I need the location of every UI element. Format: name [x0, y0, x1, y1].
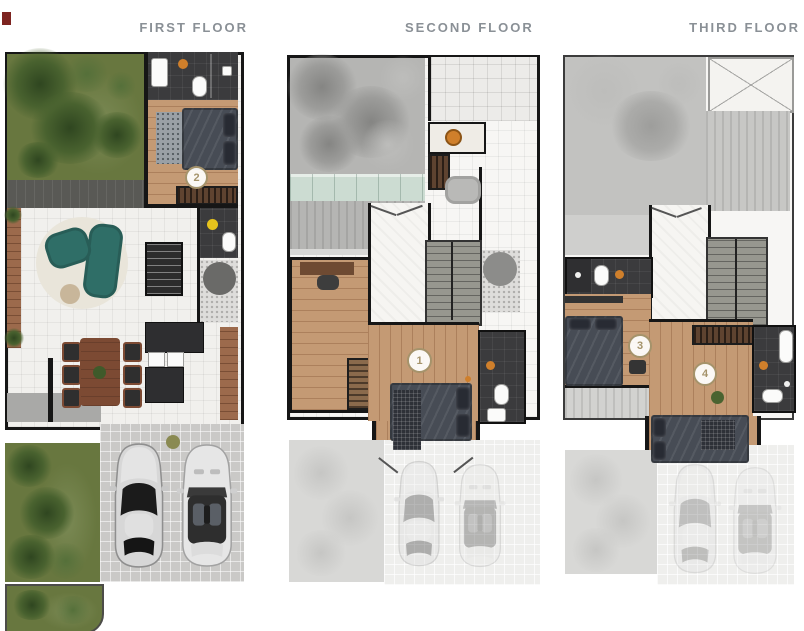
shower-court — [200, 260, 238, 322]
wall-segment — [144, 52, 148, 208]
staircase — [425, 240, 482, 326]
wall-segment — [368, 322, 479, 325]
tree-canopy-gray — [290, 58, 425, 174]
shrub-blob — [53, 596, 93, 624]
tree-blob-gray — [378, 56, 428, 100]
staircase — [145, 242, 183, 296]
powder-room — [200, 208, 238, 258]
tree-blob-gray — [298, 116, 360, 172]
skylight-panel — [708, 57, 794, 113]
shrub-blob — [91, 112, 143, 158]
terrace-deck — [7, 180, 148, 208]
pouf — [60, 284, 80, 304]
dining-chair — [123, 365, 142, 385]
bench — [629, 360, 646, 374]
car-coupe-faded — [393, 458, 445, 570]
shrub-blob — [11, 590, 53, 620]
stair-rail — [451, 242, 453, 320]
tree-blob — [19, 487, 75, 539]
car-coupe-faded — [668, 462, 722, 576]
striped-roof — [706, 111, 790, 211]
wardrobe — [692, 325, 754, 345]
second-floor-plan: 1 — [287, 53, 540, 590]
dining-chair — [62, 388, 81, 408]
shower-drain — [222, 66, 232, 76]
side-deck — [7, 208, 21, 348]
void — [649, 205, 711, 321]
front-garden — [5, 584, 104, 631]
shower-court — [482, 250, 520, 312]
shared-bath — [565, 257, 653, 298]
shrub-blob — [105, 72, 137, 100]
toilet — [192, 76, 207, 97]
first-floor-plan: 2 — [2, 10, 247, 630]
ground-trees-faded — [289, 440, 384, 582]
ensuite-bath — [478, 330, 526, 424]
ground-trees-faded — [565, 450, 657, 574]
lamp-dot — [465, 376, 471, 382]
balcony-roof — [565, 388, 651, 418]
lounge-chair — [445, 176, 481, 204]
shrub-blob — [63, 56, 111, 92]
kitchen-sink — [148, 352, 165, 367]
kitchen-island — [145, 367, 184, 403]
room-number: 4 — [693, 362, 717, 386]
pantry-cabinet — [220, 327, 238, 420]
third-floor-plan: 3 4 — [563, 53, 794, 590]
car-convertible — [174, 443, 240, 569]
sink-bowl-dot — [207, 219, 218, 230]
pillow — [569, 318, 591, 330]
shrub-blob — [15, 142, 61, 178]
car-convertible-faded — [726, 466, 784, 576]
desk — [300, 262, 354, 275]
tree-blob-faded — [293, 530, 349, 576]
room-number: 2 — [185, 166, 208, 189]
dining-chair — [123, 388, 142, 408]
void — [368, 203, 431, 323]
kitchen-counter — [145, 322, 204, 353]
dining-chair — [62, 365, 81, 385]
sink-bowl-dot — [759, 361, 768, 370]
tree-blob — [5, 445, 53, 487]
plant — [711, 391, 724, 404]
toilet — [494, 384, 509, 405]
garden — [7, 54, 148, 180]
bedroom-3: 3 — [565, 294, 651, 387]
bed — [565, 316, 623, 386]
room-number: 3 — [628, 334, 652, 358]
plant — [4, 206, 22, 224]
tree-blob-faded — [569, 528, 623, 572]
sink-bowl-dot — [445, 129, 462, 146]
stair-rail — [735, 239, 737, 321]
wardrobe — [176, 186, 238, 205]
second-floor-title: SECOND FLOOR — [405, 20, 517, 35]
pillow — [223, 113, 236, 137]
wall-shelf — [565, 296, 623, 303]
washer — [487, 408, 506, 422]
pillow — [456, 414, 470, 437]
shower-drain — [575, 272, 581, 278]
toilet — [222, 232, 236, 252]
cooktop — [167, 352, 184, 367]
bathtub — [779, 330, 793, 363]
plant — [4, 328, 24, 348]
dining-chair — [123, 342, 142, 362]
tree-blob-gray — [653, 63, 705, 105]
shower-drain — [784, 381, 790, 387]
shrub-blob — [45, 543, 87, 579]
room-number: 1 — [407, 348, 432, 373]
tree-blob-gray — [360, 120, 416, 170]
tiled-roof — [428, 57, 537, 121]
pillow — [223, 141, 236, 165]
shower-glass — [210, 54, 212, 98]
pillow — [456, 387, 470, 410]
car-convertible-faded — [452, 463, 508, 569]
bathroom-first — [146, 52, 238, 100]
curved-shower — [483, 252, 517, 286]
bed-rug — [701, 420, 735, 450]
bed — [182, 108, 238, 170]
side-garden — [5, 443, 100, 582]
pillow — [653, 441, 666, 460]
pillow — [595, 318, 617, 330]
bedroom-2: 2 — [146, 100, 238, 206]
sink — [151, 58, 168, 87]
dining-chair — [62, 342, 81, 362]
table-plant — [93, 366, 106, 379]
wall-segment — [48, 358, 53, 422]
desk-chair — [317, 275, 339, 290]
glass-canopy — [290, 174, 425, 201]
third-floor-title: THIRD FLOOR — [682, 20, 800, 35]
sink-bowl-dot — [178, 59, 188, 69]
wall-segment — [197, 208, 200, 322]
entry-planter — [2, 12, 11, 25]
floorplan-sheet: FIRST FLOOR SECOND FLOOR THIRD FLOOR — [0, 0, 804, 631]
ensuite-bath — [752, 325, 796, 413]
wall-segment — [649, 319, 753, 322]
study-room — [289, 257, 375, 413]
sink-bowl-dot — [486, 361, 495, 370]
curved-shower — [203, 262, 236, 295]
basin — [762, 389, 783, 403]
car-coupe — [108, 442, 170, 570]
pillow — [653, 418, 666, 437]
bed-rug — [393, 390, 421, 450]
sink-bowl-dot — [615, 270, 624, 279]
staircase — [706, 237, 768, 327]
toilet — [594, 265, 609, 286]
